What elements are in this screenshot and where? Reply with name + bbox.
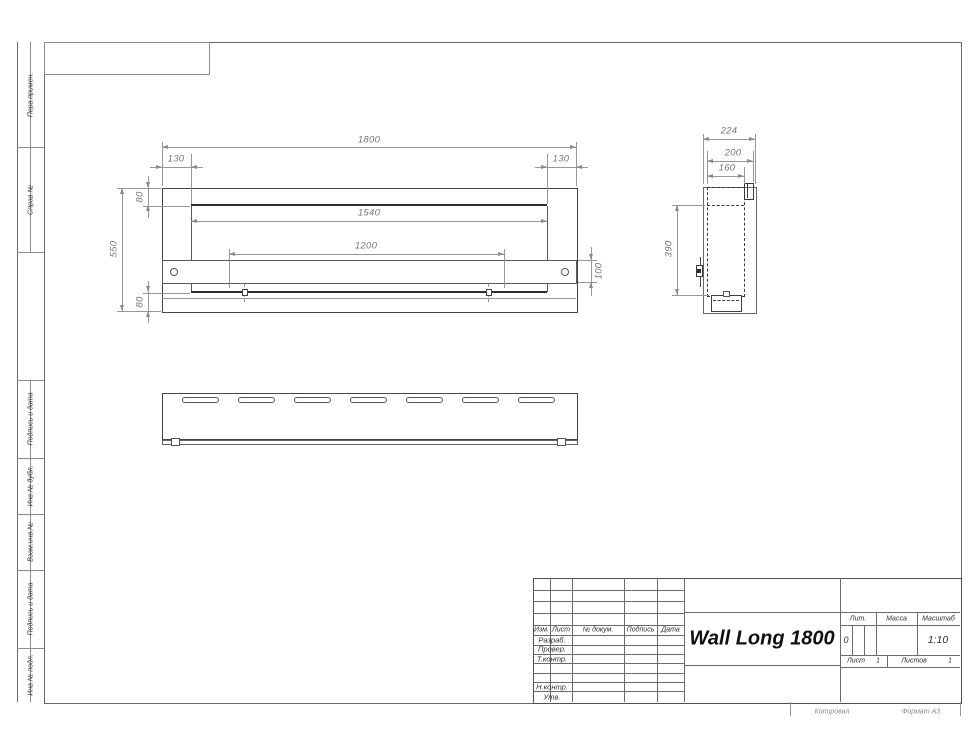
cell-line (533, 663, 684, 664)
cell-line (917, 612, 918, 655)
dim-label-opening-width: 1540 (358, 208, 380, 219)
tb-role-tkontr: Т.контр. (537, 654, 567, 663)
dim-arrow (675, 205, 679, 211)
vent-slot (350, 397, 387, 403)
front-bracket-pin (697, 269, 701, 273)
dim-label-band-height: 100 (594, 263, 605, 280)
dim-arrow (589, 282, 593, 288)
footer-tick (960, 702, 961, 716)
dim-arrow (749, 137, 755, 141)
wall-bracket-inner-line (747, 184, 748, 198)
cell-line (533, 601, 684, 602)
dim-label-total-width: 1800 (358, 135, 380, 146)
dim-arrow (589, 254, 593, 260)
margin-label-podpis-data-1: Подпись и дата (28, 393, 35, 446)
margin-label-vzam-inv: Взам.инв.№ (28, 522, 35, 561)
dimension-line (191, 221, 547, 222)
tb-lit-label: Лит. (850, 615, 866, 622)
tb-scale-label: Масштаб (922, 615, 955, 622)
dim-arrow (707, 159, 713, 163)
tb-massa-label: Масса (886, 615, 907, 622)
mount-tab-left (242, 289, 248, 296)
mount-rail (162, 440, 578, 445)
cell-line (887, 655, 888, 667)
dim-label-left-inset: 130 (168, 154, 185, 165)
cell-line (17, 252, 44, 253)
extension-line (755, 134, 756, 184)
dim-arrow (576, 165, 582, 169)
mount-tab-right (486, 289, 492, 296)
tb-sheet-label: Лист (847, 658, 865, 665)
extension-line (707, 151, 708, 184)
dim-arrow (191, 219, 197, 223)
dim-arrow (541, 165, 547, 169)
cell-line (840, 578, 841, 702)
dim-arrow (703, 137, 709, 141)
tb-sheets-total-label: Листов (901, 658, 927, 665)
vent-slot (182, 397, 219, 403)
dim-arrow (120, 305, 124, 311)
tb-header-izm: Изм. (534, 627, 549, 634)
extension-line (191, 154, 192, 204)
dim-arrow (675, 289, 679, 295)
burner-band (162, 260, 577, 284)
dimension-line (162, 147, 576, 148)
extension-line (117, 311, 161, 312)
margin-label-sprav-no: Справ.№ (28, 185, 35, 215)
dim-arrow (156, 165, 162, 169)
cell-line (572, 578, 573, 702)
margin-label-podpis-data-2: Подпись и дата (28, 583, 35, 636)
extension-line (672, 295, 709, 296)
vent-slot (518, 397, 555, 403)
vent-slot (294, 397, 331, 403)
vent-slot (406, 397, 443, 403)
tb-role-utv: Утв. (543, 692, 560, 701)
dim-arrow (747, 159, 753, 163)
hidden-line (713, 300, 739, 301)
footer-tick (790, 702, 791, 716)
dim-label-total-depth: 224 (721, 126, 738, 137)
tb-sheet-value: 1 (876, 658, 880, 665)
extension-line (578, 260, 597, 261)
margin-label-inv-dubl: Инв.№ дубл. (28, 465, 35, 506)
cell-line (876, 612, 877, 655)
dim-arrow (541, 219, 547, 223)
tb-sheets-total-value: 1 (948, 658, 952, 665)
dimension-line (703, 139, 755, 140)
dim-label-mount-span: 1200 (355, 241, 377, 252)
dim-label-insert-depth: 160 (719, 163, 736, 174)
extension-line (547, 154, 548, 204)
burner-nub (723, 291, 730, 297)
cell-line (684, 612, 960, 613)
dim-label-top-flange: 80 (135, 191, 146, 202)
top-left-stamp-box (44, 42, 210, 75)
dim-arrow (498, 252, 504, 256)
dim-label-body-depth: 200 (725, 148, 742, 159)
cell-line (852, 625, 853, 655)
dim-label-bottom-flange: 80 (135, 296, 146, 307)
mount-hole-left (170, 268, 178, 276)
margin-label-perv-primen: Перв.примен. (28, 73, 35, 118)
extension-line (578, 282, 597, 283)
cell-line (533, 613, 684, 614)
hidden-line (707, 205, 744, 206)
hidden-insert-box (707, 187, 745, 297)
extension-line (143, 293, 190, 294)
dim-arrow (146, 286, 150, 292)
dim-label-insert-height: 390 (664, 241, 675, 258)
extension-line (504, 249, 505, 288)
cell-line (533, 673, 684, 674)
tb-role-nkontr: Н.контр. (536, 682, 568, 691)
dim-arrow (146, 311, 150, 317)
cell-line (840, 625, 960, 626)
dimension-line (677, 205, 678, 295)
dim-arrow (146, 182, 150, 188)
cell-line (657, 578, 658, 702)
copy-note: Копировал (815, 709, 850, 716)
tb-lit-value: 0 (843, 635, 848, 645)
wall-bracket (744, 183, 754, 200)
tb-header-doc-no: № докум. (583, 627, 614, 634)
dimension-line (122, 188, 123, 311)
tb-header-data: Дата (661, 627, 679, 634)
margin-label-inv-podl: Инв.№ подл. (28, 654, 35, 696)
dim-arrow (707, 174, 713, 178)
vent-slot (462, 397, 499, 403)
burner-box-side (711, 295, 742, 312)
rail-foot-right (557, 438, 566, 446)
dim-arrow (146, 205, 150, 211)
cell-line (840, 655, 960, 656)
cell-line (684, 665, 840, 666)
extension-line (753, 151, 754, 182)
tb-scale-value: 1:10 (928, 634, 948, 646)
cell-line (684, 578, 685, 702)
rail-foot-left (171, 438, 180, 446)
extension-line (576, 142, 577, 186)
tb-role-razrab: Разраб. (538, 636, 565, 645)
tb-role-prover: Провер. (538, 645, 566, 654)
extension-line (744, 167, 745, 184)
binding-edge-line (17, 42, 18, 702)
dim-label-right-inset: 130 (553, 154, 570, 165)
dim-arrow (162, 145, 168, 149)
format-note: Формат А3 (902, 709, 940, 716)
dim-label-total-height: 550 (109, 241, 120, 258)
dim-arrow (570, 145, 576, 149)
glass-ledge-line (162, 298, 576, 299)
opening-top-edge (191, 204, 547, 206)
extension-line (703, 134, 704, 184)
dim-arrow (120, 188, 124, 194)
document-title: Wall Long 1800 (689, 628, 834, 651)
cell-line (624, 578, 625, 702)
mount-hole-right (561, 268, 569, 276)
dim-arrow (738, 174, 744, 178)
dimension-line (229, 254, 504, 255)
extension-line (143, 206, 190, 207)
vent-slot (238, 397, 275, 403)
tb-header-podpis: Подпись (627, 627, 655, 634)
cell-line (840, 667, 960, 668)
dim-arrow (229, 252, 235, 256)
cell-line (533, 590, 684, 591)
dim-arrow (191, 165, 197, 169)
tb-header-list: Лист (552, 627, 570, 634)
drawing-sheet: Перв.примен. Справ.№ Подпись и дата Инв.… (0, 0, 970, 749)
cell-line (864, 625, 865, 655)
